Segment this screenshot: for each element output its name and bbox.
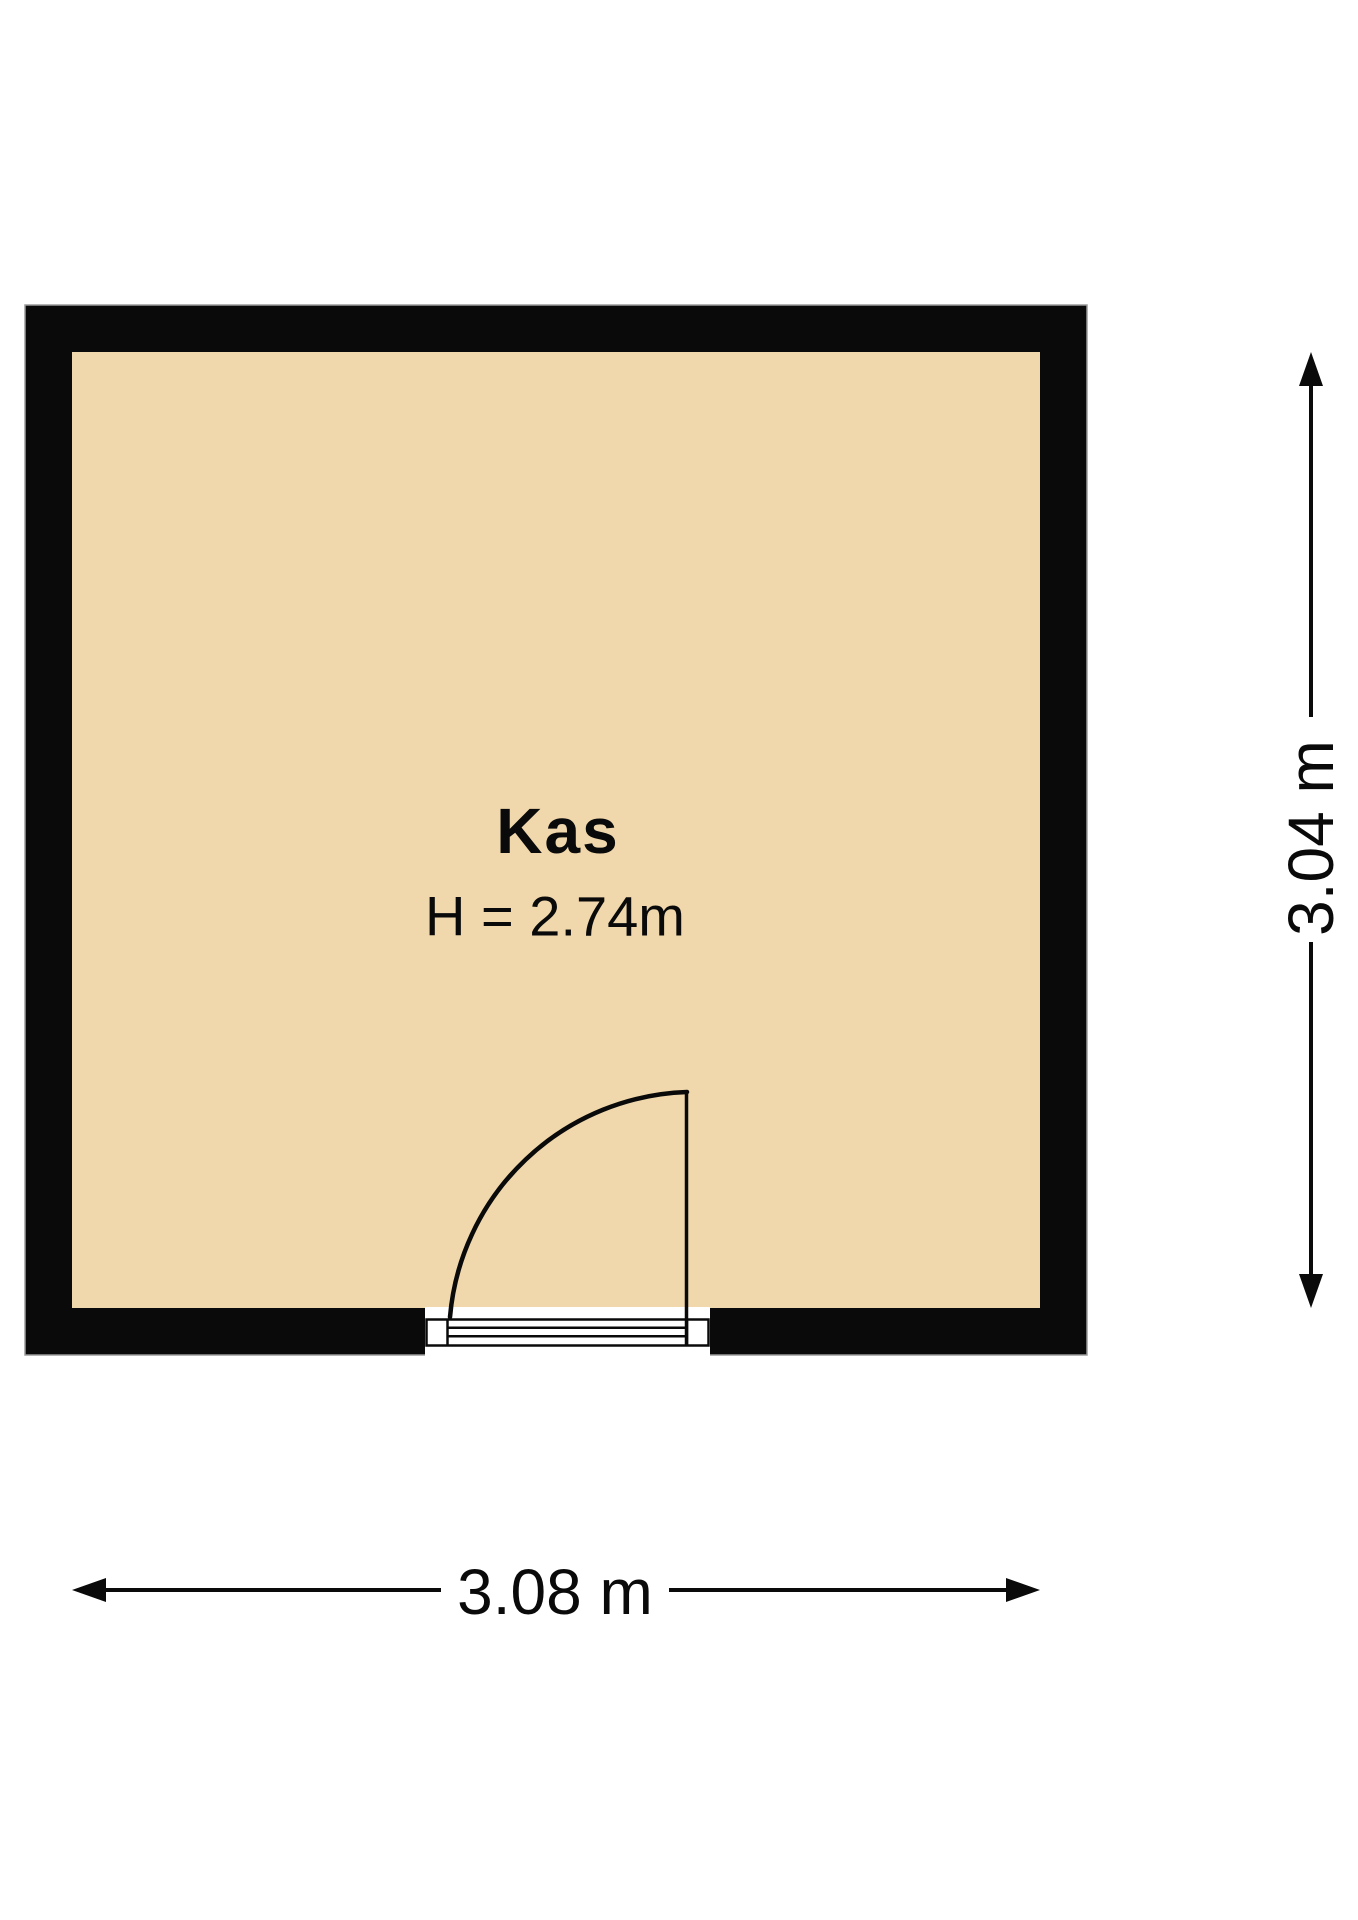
door-threshold bbox=[427, 1320, 709, 1346]
height-dimension: 3.04 m bbox=[1275, 352, 1347, 1308]
arrow-up-icon bbox=[1299, 352, 1323, 386]
height-dimension-label: 3.04 m bbox=[1275, 740, 1347, 936]
arrow-right-icon bbox=[1006, 1578, 1040, 1602]
floorplan-page: Kas H = 2.74m 3.08 m 3.04 m bbox=[0, 0, 1358, 1920]
arrow-left-icon bbox=[72, 1578, 106, 1602]
door-threshold-box bbox=[427, 1320, 709, 1346]
arrow-down-icon bbox=[1299, 1274, 1323, 1308]
width-dimension-label: 3.08 m bbox=[457, 1556, 653, 1628]
room-name-label: Kas bbox=[496, 795, 619, 867]
width-dimension: 3.08 m bbox=[72, 1556, 1040, 1628]
room-height-label: H = 2.74m bbox=[425, 885, 685, 948]
floorplan-drawing: Kas H = 2.74m 3.08 m 3.04 m bbox=[0, 0, 1358, 1920]
